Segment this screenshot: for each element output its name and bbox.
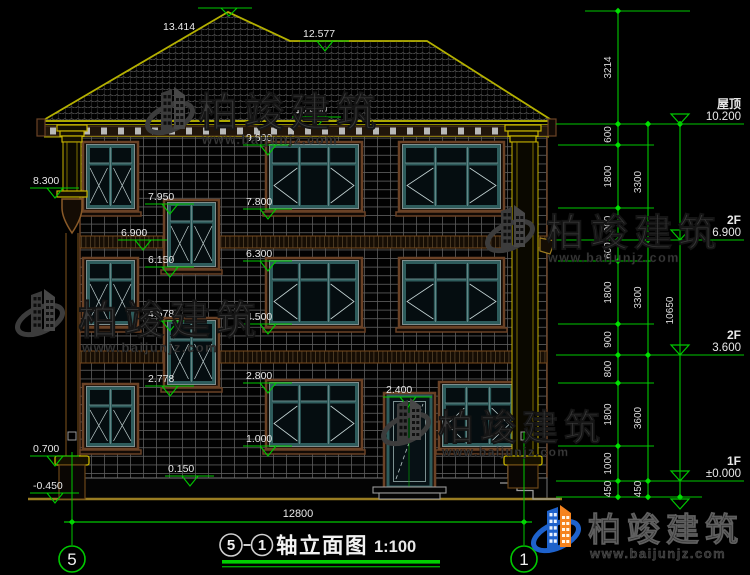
floor-name: 屋顶 — [717, 97, 741, 111]
dimension-label: 1000 — [603, 452, 614, 475]
plinth — [80, 478, 547, 499]
window — [263, 258, 365, 332]
watermark-company: 柏竣建筑 — [78, 299, 262, 343]
watermark-company: 柏竣建筑 — [198, 91, 382, 135]
window — [263, 380, 365, 454]
dimension-label: 3300 — [633, 170, 644, 193]
floor-elevation: 10.200 — [706, 111, 741, 123]
floor-elevation: 3.600 — [712, 342, 741, 354]
dimension-label: 1800 — [603, 281, 614, 304]
elevation-value: 0.700 — [33, 443, 59, 455]
watermark-website: www.baijunjz.com — [547, 251, 680, 265]
watermark-website: www.baijunjz.com — [81, 340, 218, 355]
floor-name: 1F — [727, 454, 741, 468]
elevation-value: 2.800 — [246, 370, 272, 382]
elevation-value: 8.300 — [33, 175, 59, 187]
door-steps — [373, 487, 446, 499]
dimension-label: 450 — [633, 480, 644, 497]
elevation-value: 6.900 — [121, 227, 147, 239]
window — [80, 384, 141, 454]
eave-end-cap-right — [548, 119, 556, 136]
eave-end-cap-left — [37, 119, 45, 136]
drawing-title: 轴立面图 — [276, 533, 368, 558]
title-axis-end-number: 1 — [258, 537, 266, 554]
dimension-label: 3214 — [603, 56, 614, 79]
watermark-company: 柏竣建筑 — [588, 511, 744, 548]
window — [263, 142, 365, 216]
watermark-company: 柏竣建筑 — [546, 213, 722, 255]
axis-number: 5 — [67, 550, 76, 569]
dimension-label: 3600 — [633, 406, 644, 429]
watermark-website: www.baijunjz.com — [201, 132, 338, 147]
floor-name: 2F — [727, 328, 741, 342]
dimension-label: 900 — [603, 331, 614, 348]
watermark-company: 柏竣建筑 — [438, 407, 606, 448]
title-underline-thick — [222, 560, 440, 564]
cad-elevation-screenshot: 3214600180090060018009008001800100045033… — [0, 0, 750, 575]
elevation-value: -0.450 — [33, 480, 63, 492]
floor-elevation: ±0.000 — [706, 468, 741, 480]
dimension-label: 3300 — [633, 286, 644, 309]
title-axis-start-number: 5 — [227, 537, 235, 554]
elevation-value: 6.300 — [246, 248, 272, 260]
drawing-scale: 1:100 — [374, 538, 416, 556]
title-underline-thin — [222, 566, 440, 567]
dimension-label: 450 — [603, 480, 614, 497]
dimension-label: 10650 — [665, 296, 676, 324]
window — [80, 142, 141, 216]
elevation-value: 2.400 — [386, 384, 412, 396]
dimension-label: 600 — [603, 126, 614, 143]
overall-width-dimension: 12800 — [283, 508, 314, 520]
dimension-label: 1800 — [603, 165, 614, 188]
dimension-label: 800 — [603, 360, 614, 377]
elevation-value: 13.414 — [163, 21, 195, 33]
window — [396, 258, 507, 332]
watermark-website: www.baijunjz.com — [441, 445, 570, 459]
elevation-value: 12.577 — [303, 28, 335, 40]
elevation-value: 7.950 — [148, 191, 174, 203]
elevation-value: 0.150 — [168, 463, 194, 475]
axis-number: 1 — [519, 550, 528, 569]
elevation-value: 2.778 — [148, 373, 174, 385]
window — [396, 142, 507, 216]
elevation-value: 7.800 — [246, 196, 272, 208]
watermark-website: www.baijunjz.com — [589, 546, 726, 561]
elevation-value: 1.000 — [246, 433, 272, 445]
floor-name: 2F — [727, 213, 741, 227]
elevation-value: 6.150 — [148, 254, 174, 266]
